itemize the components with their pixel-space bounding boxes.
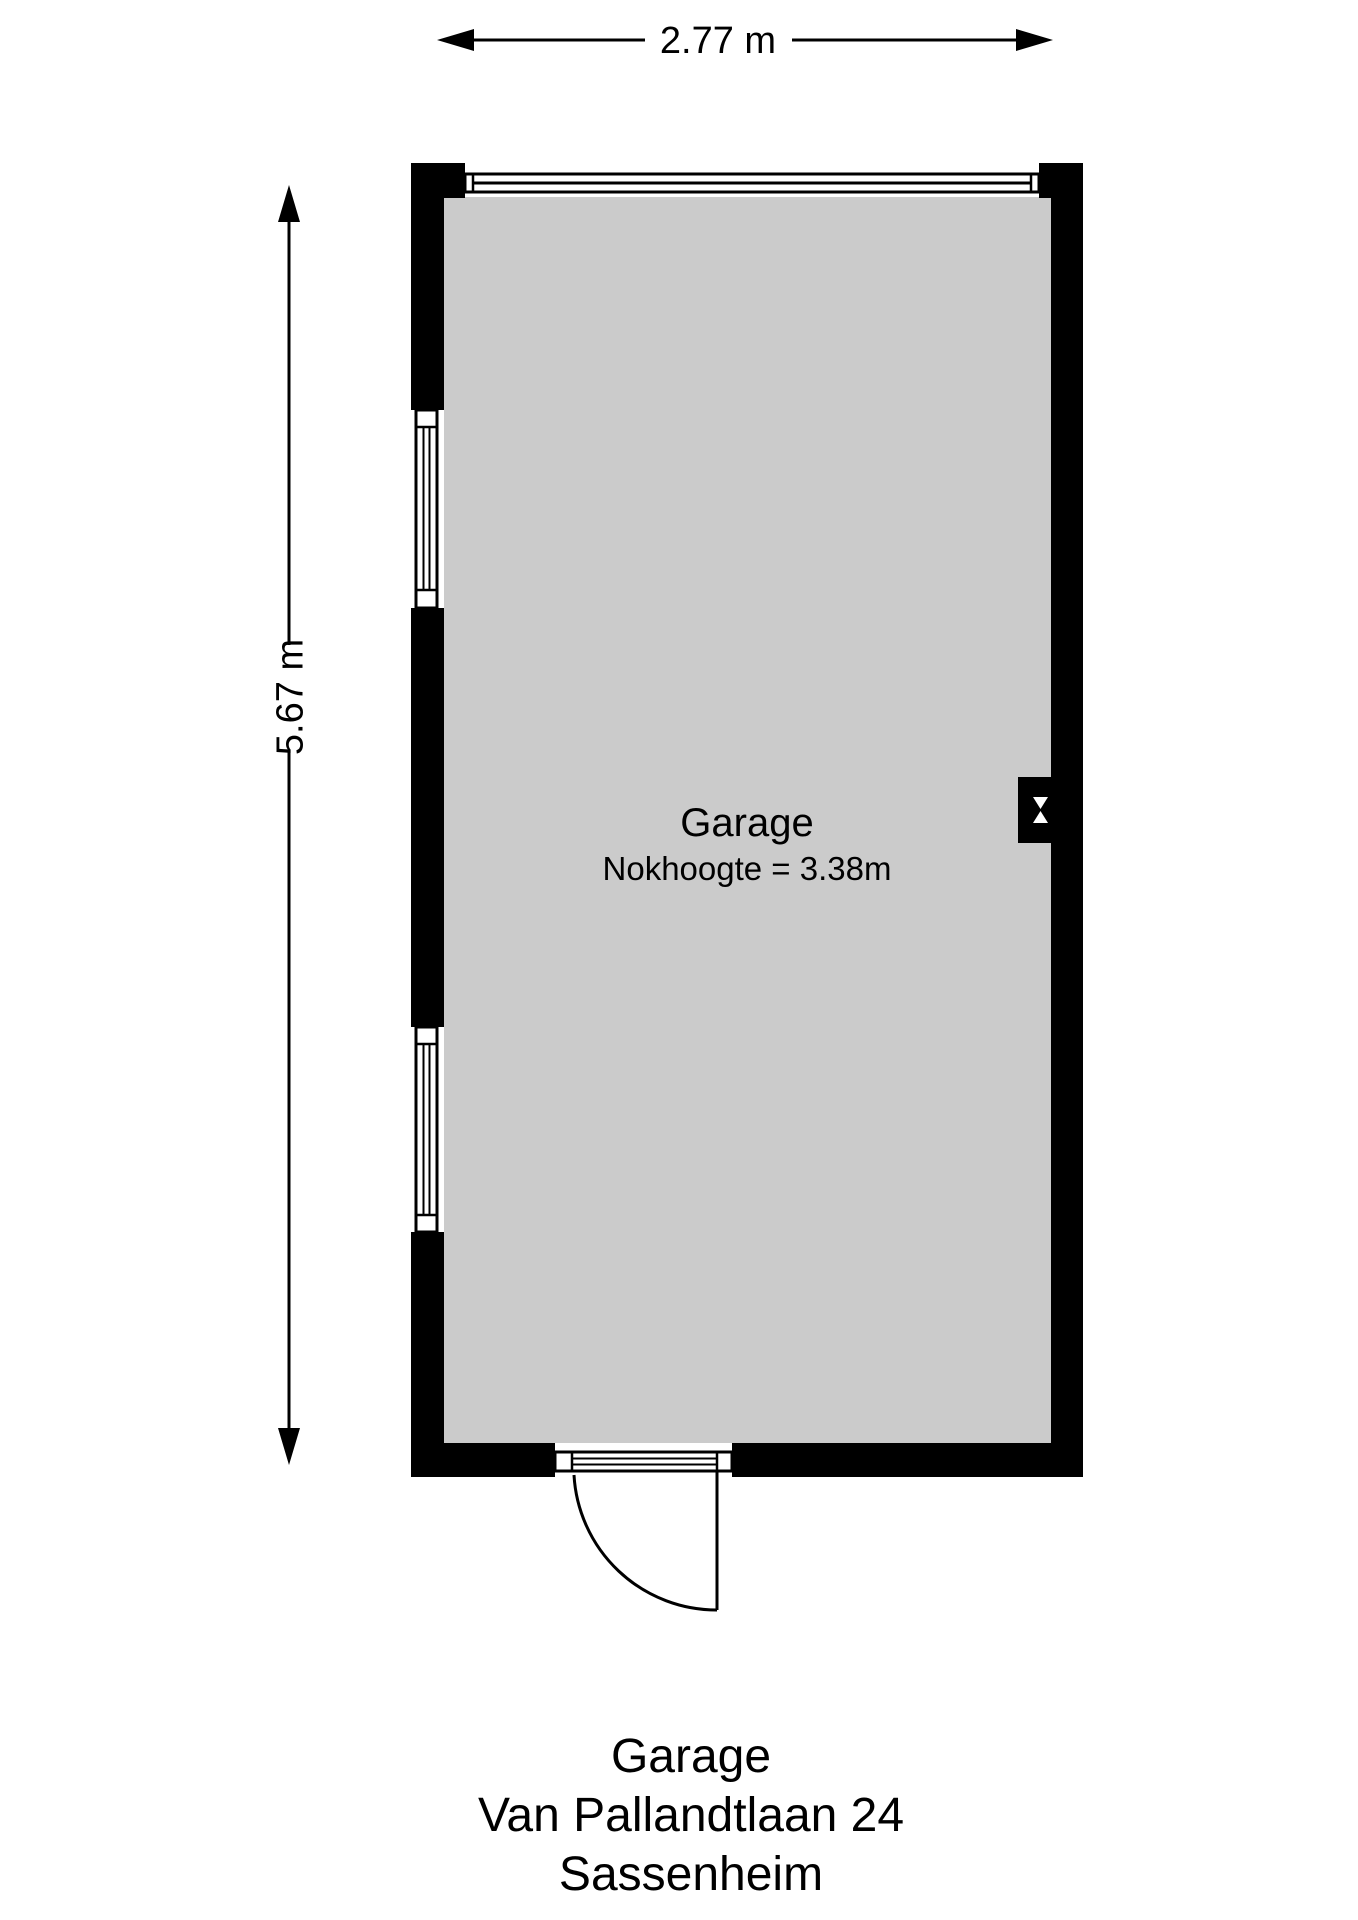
ventilation-symbol (1018, 777, 1051, 843)
width-dimension: 2.77 m (437, 20, 1053, 62)
room-height-note: Nokhoogte = 3.38m (603, 850, 892, 887)
arrow-down-icon (278, 1428, 300, 1465)
width-dimension-label: 2.77 m (660, 20, 776, 62)
wall-left-middle (411, 608, 444, 1027)
window-frame (416, 410, 437, 608)
arrow-right-icon (1016, 29, 1053, 51)
arrow-left-icon (437, 29, 474, 51)
title-street: Van Pallandtlaan 24 (478, 1789, 904, 1842)
wall-bottom-right (732, 1443, 1083, 1477)
wall-bottom-left (411, 1443, 555, 1477)
title-room: Garage (611, 1730, 771, 1783)
top-window (465, 174, 1039, 192)
vent-box (1018, 777, 1051, 843)
floorplan-page: 2.77 m 5.67 m (0, 0, 1358, 1920)
room-name-label: Garage (680, 801, 813, 845)
title-block: Garage Van Pallandtlaan 24 Sassenheim (478, 1730, 904, 1901)
door-threshold-frame (555, 1452, 732, 1471)
left-window-lower (416, 1027, 437, 1232)
entry-door (555, 1452, 732, 1610)
wall-left-upper (411, 163, 444, 410)
height-dimension: 5.67 m (269, 185, 311, 1465)
door-swing-arc (574, 1475, 717, 1610)
left-window-upper (416, 410, 437, 608)
wall-right (1051, 163, 1083, 1477)
title-city: Sassenheim (559, 1848, 823, 1901)
wall-left-lower (411, 1232, 444, 1477)
height-dimension-label: 5.67 m (269, 639, 311, 755)
window-frame (416, 1027, 437, 1232)
floorplan-canvas: 2.77 m 5.67 m (0, 0, 1358, 1920)
arrow-up-icon (278, 185, 300, 222)
